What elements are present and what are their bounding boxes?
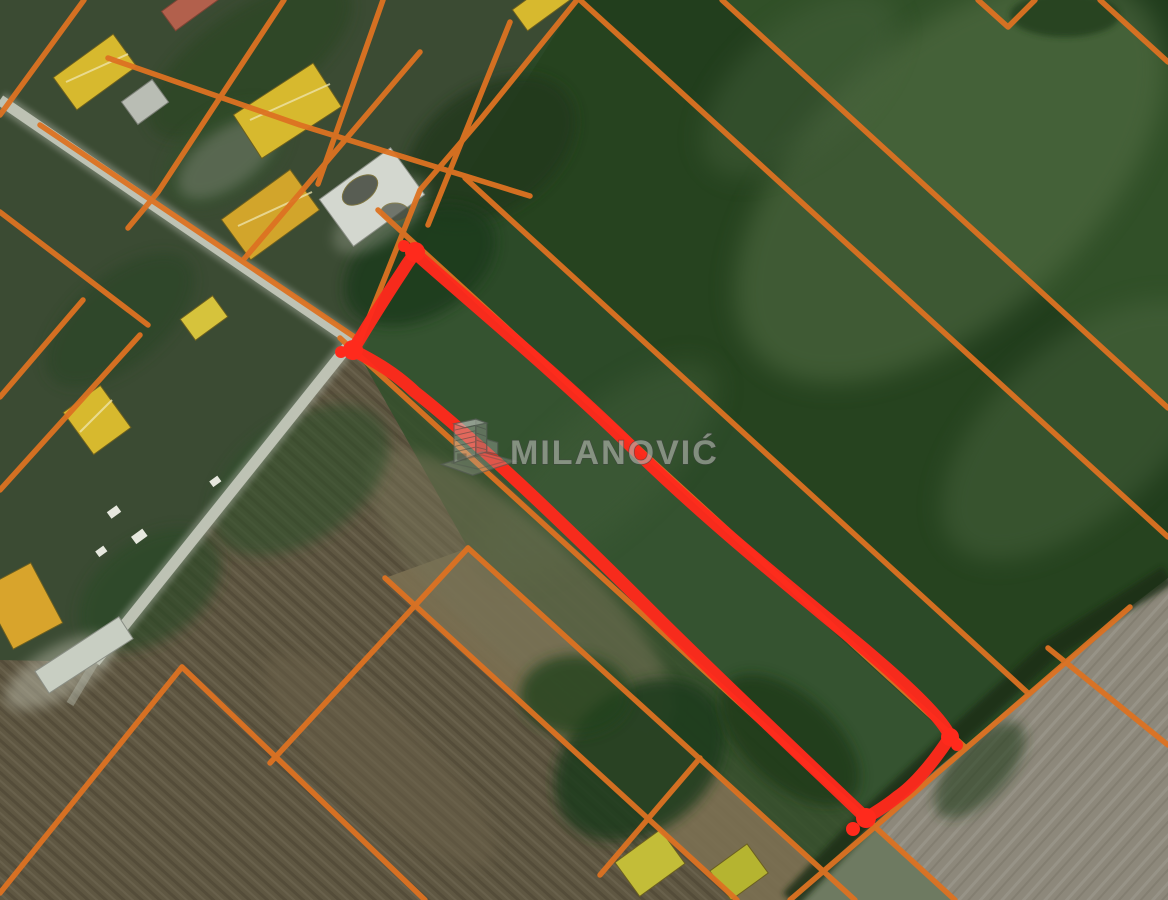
parcel-corner-node xyxy=(398,240,410,252)
satellite-map: MILANOVIĆ xyxy=(0,0,1168,900)
parcel-corner-node xyxy=(846,822,860,836)
parcel-corner-node xyxy=(335,346,347,358)
parcel-corner-node xyxy=(951,739,963,751)
watermark-text: MILANOVIĆ xyxy=(510,434,719,472)
parcel-corner-node xyxy=(856,808,876,828)
